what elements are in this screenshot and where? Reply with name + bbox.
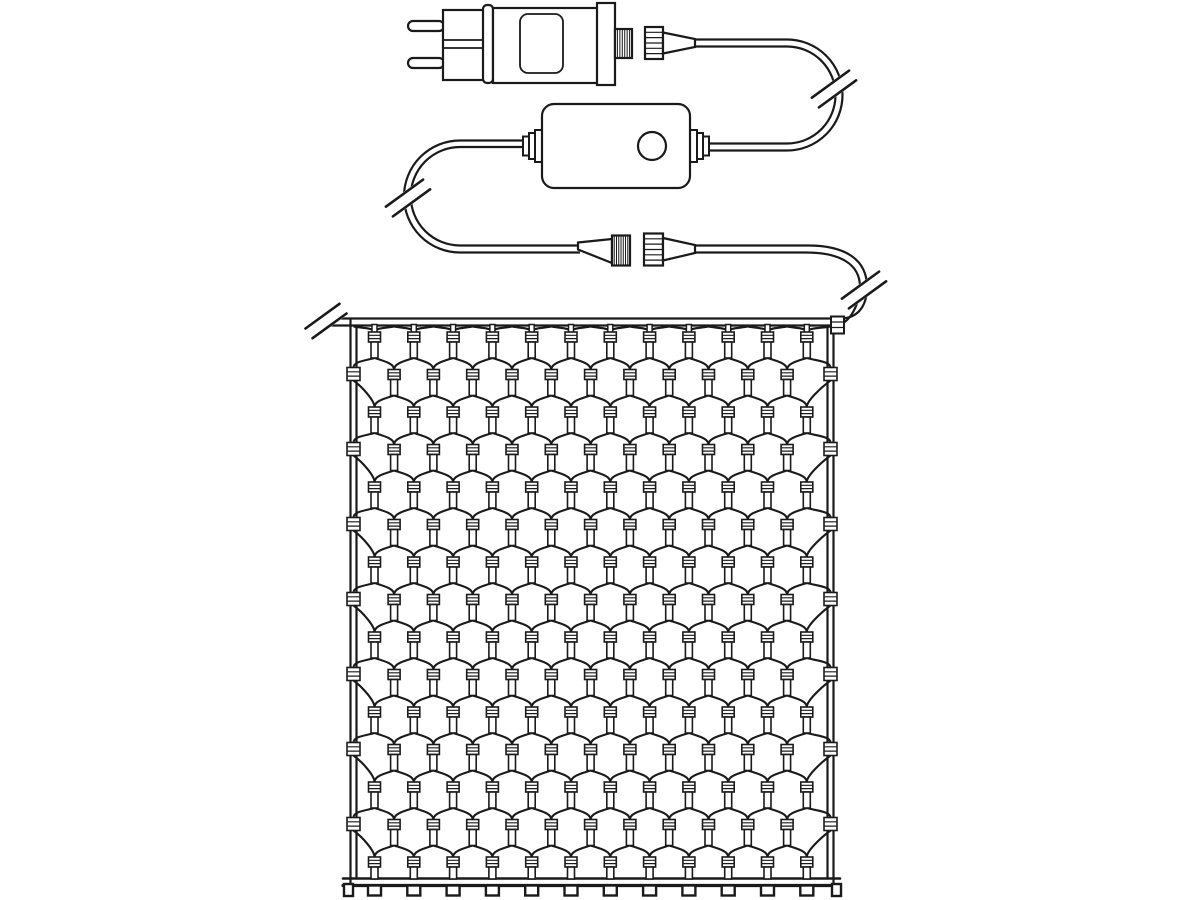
lamp-bulb [685, 417, 692, 433]
lamp-bulb [391, 605, 398, 621]
lamp-bulb [725, 642, 732, 658]
lamp-socket [565, 332, 577, 342]
mounting-foot [682, 886, 695, 896]
mesh-strand [473, 583, 493, 595]
mesh-strand [630, 621, 650, 633]
mesh-strand [551, 508, 571, 520]
lamp [585, 670, 597, 696]
mesh-strand [689, 508, 709, 520]
lamp [369, 707, 381, 733]
mesh-strand [669, 621, 689, 633]
lamp [585, 595, 597, 621]
lamp-bulb [666, 680, 673, 696]
mesh-strand [492, 733, 512, 745]
lamp-socket [388, 445, 400, 455]
mesh-strand [728, 621, 748, 633]
edge-clip-body [824, 593, 837, 606]
lamp-bulb [371, 792, 378, 808]
mesh-strand [748, 433, 768, 445]
lamp-socket [644, 482, 656, 492]
lamp-bulb [607, 867, 614, 879]
lamp-socket [644, 857, 656, 867]
lamp-bulb [489, 342, 496, 358]
mesh-strand [492, 583, 512, 595]
lamp [801, 557, 813, 583]
mesh-strand [768, 471, 788, 483]
lamp [801, 632, 813, 658]
edge-clip [347, 368, 360, 381]
mesh-strand [551, 396, 571, 408]
mesh-strand [551, 546, 571, 558]
mesh-strand [512, 396, 532, 408]
lamp-socket [624, 670, 636, 680]
mesh-strand [709, 621, 729, 633]
lamp-socket [722, 407, 734, 417]
mesh-strand [630, 658, 650, 670]
lamp-bulb [509, 755, 516, 771]
mesh-strand [610, 396, 630, 408]
lamp-bulb [548, 605, 555, 621]
net-lights-diagram-page [0, 0, 1200, 900]
lamp-socket [762, 482, 774, 492]
corner-collar [831, 317, 844, 334]
lamp-bulb [528, 792, 535, 808]
lamp [408, 782, 420, 808]
lamp [722, 707, 734, 733]
lamp-socket [663, 445, 675, 455]
lamp-bulb [607, 567, 614, 583]
mesh-strand [532, 471, 552, 483]
lamp [506, 745, 518, 771]
mesh-strand [394, 658, 414, 670]
mesh-strand [433, 396, 453, 408]
mesh-strand [473, 621, 493, 633]
mesh-strand [433, 696, 453, 708]
lamp-bulb [489, 567, 496, 583]
mesh-strand [748, 621, 768, 633]
lamp-bulb [450, 492, 457, 508]
mesh-strand [394, 696, 414, 708]
lamp-socket [506, 445, 518, 455]
edge-clip-body [347, 443, 360, 456]
mesh-strand [512, 808, 532, 820]
lamp-socket [801, 482, 813, 492]
lamp-bulb [430, 830, 437, 846]
mesh-strand [768, 433, 788, 445]
mesh-strand [433, 508, 453, 520]
lamp-socket [565, 557, 577, 567]
lamp-socket [781, 820, 793, 830]
mesh-strand [591, 696, 611, 708]
mesh-strand [571, 808, 591, 820]
lamp-bulb [528, 867, 535, 879]
lamp [545, 745, 557, 771]
lamp-bulb [784, 605, 791, 621]
mesh-strand [512, 658, 532, 670]
lamp-bulb [607, 492, 614, 508]
lamp-socket [506, 370, 518, 380]
lamp [742, 595, 754, 621]
lamp-socket [781, 520, 793, 530]
mesh-strand [433, 846, 453, 858]
lamp-bulb [725, 717, 732, 733]
mesh-strand [571, 583, 591, 595]
lamp [762, 632, 774, 658]
connector-female-taper [663, 238, 695, 261]
lamp-bulb [391, 755, 398, 771]
lamp [663, 520, 675, 546]
lamp [722, 482, 734, 508]
mesh-strand [709, 583, 729, 595]
lamp-bulb [430, 530, 437, 546]
lamp-socket [408, 632, 420, 642]
lamp-bulb [705, 605, 712, 621]
mesh-strand [610, 546, 630, 558]
mesh-strand [394, 433, 414, 445]
mesh-strand [669, 771, 689, 783]
mesh-strand [709, 433, 729, 445]
lamp-socket [545, 595, 557, 605]
mesh-strand [689, 433, 709, 445]
lamp-bulb [666, 455, 673, 471]
mesh-strand [630, 696, 650, 708]
mesh-strand [453, 471, 473, 483]
lamp-socket [762, 707, 774, 717]
lamp [801, 707, 813, 733]
lamp [545, 445, 557, 471]
lamp [565, 857, 577, 879]
mesh-strand [689, 583, 709, 595]
lamp [506, 445, 518, 471]
lamp [644, 707, 656, 733]
lamp [624, 370, 636, 396]
lamp [369, 782, 381, 808]
lamp [663, 670, 675, 696]
lamp-socket [467, 820, 479, 830]
mesh-strand [375, 808, 395, 820]
edge-clip [347, 518, 360, 531]
mesh-strand [787, 396, 807, 408]
lamp [447, 707, 459, 733]
mesh-strand [512, 583, 532, 595]
mesh-strand [532, 546, 552, 558]
lamp-socket [369, 332, 381, 342]
edge-clip [824, 518, 837, 531]
mesh-strand [453, 508, 473, 520]
mesh-strand [375, 733, 395, 745]
lamp-bulb [489, 867, 496, 879]
lamp-bulb [371, 417, 378, 433]
mesh-strand [375, 583, 395, 595]
mesh-strand [414, 658, 434, 670]
lamp-bulb [469, 755, 476, 771]
lamp [526, 482, 538, 508]
lamp-socket [663, 670, 675, 680]
lamp-socket [604, 557, 616, 567]
lamp-bulb [764, 867, 771, 879]
lamp-bulb [646, 717, 653, 733]
lamp [604, 632, 616, 658]
mesh-strand [453, 771, 473, 783]
lamp [604, 557, 616, 583]
mesh-strand [571, 696, 591, 708]
lamp-bulb [784, 455, 791, 471]
mesh-strand [748, 358, 768, 370]
lamp-socket [644, 557, 656, 567]
mesh-strand [591, 621, 611, 633]
lamp-bulb [450, 567, 457, 583]
lamp-bulb [410, 417, 417, 433]
lamp-socket [369, 632, 381, 642]
lamp-socket [683, 707, 695, 717]
mesh-strand [709, 733, 729, 745]
mesh-strand [709, 471, 729, 483]
edge-clip [824, 443, 837, 456]
lamp [683, 407, 695, 433]
mesh-strand [610, 508, 630, 520]
edge-clip [824, 593, 837, 606]
mesh-strand [591, 358, 611, 370]
mesh-strand [630, 771, 650, 783]
lamp-bulb [803, 342, 810, 358]
lamp-bulb [371, 717, 378, 733]
mesh-strand [748, 583, 768, 595]
lamp-bulb [803, 567, 810, 583]
plug-front-block [443, 10, 484, 80]
lamp-bulb [528, 417, 535, 433]
mesh-strand [394, 508, 414, 520]
mounting-foot [800, 886, 813, 896]
lamp-socket [506, 520, 518, 530]
lamp-socket [388, 520, 400, 530]
lamp-bulb [744, 605, 751, 621]
mesh-strand [689, 733, 709, 745]
lamp-socket [447, 782, 459, 792]
lamp-socket [663, 745, 675, 755]
mesh-strand [689, 358, 709, 370]
lamp [762, 482, 774, 508]
lamp [762, 707, 774, 733]
lamp-socket [486, 482, 498, 492]
lamp-socket [545, 445, 557, 455]
mesh-strand [610, 696, 630, 708]
lamp-bulb [548, 830, 555, 846]
lamp-bulb [666, 530, 673, 546]
mesh-strand [591, 583, 611, 595]
mesh-strand [414, 583, 434, 595]
lamp-bulb [626, 455, 633, 471]
lamp-bulb [725, 867, 732, 879]
lamp [565, 782, 577, 808]
lamp-bulb [744, 755, 751, 771]
lamp-socket [762, 557, 774, 567]
mesh-strand [669, 658, 689, 670]
cable-connector-to-net [695, 253, 860, 326]
lamp-socket [467, 745, 479, 755]
mesh-strand [551, 846, 571, 858]
lamp-socket [408, 482, 420, 492]
lamp-bulb [371, 342, 378, 358]
mesh-strand [709, 358, 729, 370]
lamp-socket [427, 595, 439, 605]
mesh-strand [669, 583, 689, 595]
lamp-bulb [646, 417, 653, 433]
mesh-strand [532, 733, 552, 745]
mesh-strand [689, 696, 709, 708]
lamp-bulb [410, 867, 417, 879]
lamp-socket [663, 370, 675, 380]
lamp [408, 857, 420, 879]
mesh-strand [532, 621, 552, 633]
lamp-bulb [391, 380, 398, 396]
lamp-bulb [528, 642, 535, 658]
lamp-bulb [744, 530, 751, 546]
lamp [467, 595, 479, 621]
lamp-bulb [626, 680, 633, 696]
lamp-socket [565, 857, 577, 867]
lamp-socket [742, 445, 754, 455]
lamp-bulb [705, 530, 712, 546]
mesh-strand [689, 396, 709, 408]
mesh-strand [551, 358, 571, 370]
mesh-strand [768, 396, 788, 408]
lamp-socket [388, 370, 400, 380]
mesh-strand [492, 546, 512, 558]
lamp [565, 707, 577, 733]
lamp-bulb [646, 492, 653, 508]
lamp-bulb [744, 680, 751, 696]
screw-connector-pair [578, 234, 695, 266]
mounting-foot [643, 886, 656, 896]
lamp-bulb [371, 492, 378, 508]
mesh-strand [453, 733, 473, 745]
mesh-strand [669, 546, 689, 558]
lamp-bulb [568, 792, 575, 808]
mesh-strand [532, 433, 552, 445]
lamp [408, 407, 420, 433]
mesh-strand [551, 658, 571, 670]
lamp [369, 557, 381, 583]
mesh-strand [394, 771, 414, 783]
edge-clip [347, 818, 360, 831]
lamp-socket [369, 707, 381, 717]
lamp-bulb [469, 605, 476, 621]
lamp-bulb [607, 417, 614, 433]
lamp [585, 820, 597, 846]
lamp-bulb [568, 567, 575, 583]
lamp-bulb [410, 642, 417, 658]
edge-clip-body [824, 368, 837, 381]
lamp [801, 782, 813, 808]
mesh-strand [433, 583, 453, 595]
lamp-bulb [371, 567, 378, 583]
mesh-strand [630, 508, 650, 520]
lamp-socket [369, 857, 381, 867]
lamp-bulb [371, 642, 378, 658]
lamp [447, 557, 459, 583]
lamp [545, 520, 557, 546]
lamp-bulb [410, 492, 417, 508]
lamp-socket [369, 557, 381, 567]
mesh-strand [728, 733, 748, 745]
lamp-bulb [548, 455, 555, 471]
lamp [486, 782, 498, 808]
lamp-bulb [646, 567, 653, 583]
lamp-bulb [469, 455, 476, 471]
mesh-strand [551, 433, 571, 445]
lamp-bulb [430, 680, 437, 696]
lamp [486, 632, 498, 658]
lamp [742, 445, 754, 471]
lamp-bulb [509, 830, 516, 846]
lamp-socket [604, 707, 616, 717]
mesh-strand [768, 771, 788, 783]
lamp-bulb [666, 605, 673, 621]
mesh-strand [473, 808, 493, 820]
lamp [604, 482, 616, 508]
lamp [624, 520, 636, 546]
mesh-strand [532, 396, 552, 408]
lamp-socket [506, 595, 518, 605]
lamp [781, 745, 793, 771]
lamp [486, 482, 498, 508]
lamp [486, 707, 498, 733]
mesh-strand [650, 358, 670, 370]
mesh-strand [650, 621, 670, 633]
lamp-bulb [509, 530, 516, 546]
lamp-bulb [450, 417, 457, 433]
lamp-bulb [803, 492, 810, 508]
lamp-socket [369, 482, 381, 492]
mesh-strand [591, 808, 611, 820]
lamp-bulb [744, 455, 751, 471]
lamp-socket [801, 857, 813, 867]
lamp-socket [742, 370, 754, 380]
lamp-bulb [725, 492, 732, 508]
lamp-bulb [450, 792, 457, 808]
lamp [565, 557, 577, 583]
mesh-strand [433, 808, 453, 820]
mesh-strand [728, 846, 748, 858]
lamp-bulb [587, 530, 594, 546]
mesh-strand [650, 471, 670, 483]
mesh-strand [492, 808, 512, 820]
mesh-strand [728, 696, 748, 708]
mesh-strand [532, 771, 552, 783]
edge-clip [347, 668, 360, 681]
mesh-strand [512, 771, 532, 783]
mounting-foot [604, 886, 617, 896]
lamp-socket [486, 707, 498, 717]
lamp [467, 445, 479, 471]
mesh-strand [512, 846, 532, 858]
mesh-strand [414, 433, 434, 445]
lamp-bulb [548, 680, 555, 696]
lamp-bulb [391, 680, 398, 696]
lamp-socket [683, 632, 695, 642]
edge-clip [347, 443, 360, 456]
lamp [801, 482, 813, 508]
edge-clip-body [824, 668, 837, 681]
lamp-socket [703, 595, 715, 605]
lamp-socket [801, 407, 813, 417]
lamp-socket [781, 370, 793, 380]
mounting-foot [486, 886, 499, 896]
edge-clip-body [347, 368, 360, 381]
controller-housing [542, 104, 690, 188]
lamp-bulb [705, 380, 712, 396]
lamp [781, 820, 793, 846]
